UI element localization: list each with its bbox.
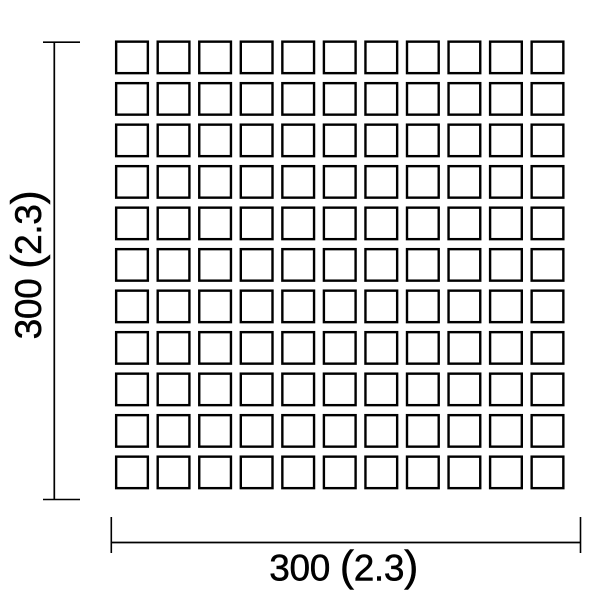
svg-text:300 (2.3): 300 (2.3): [269, 544, 418, 591]
svg-text:300 (2.3): 300 (2.3): [4, 191, 51, 340]
